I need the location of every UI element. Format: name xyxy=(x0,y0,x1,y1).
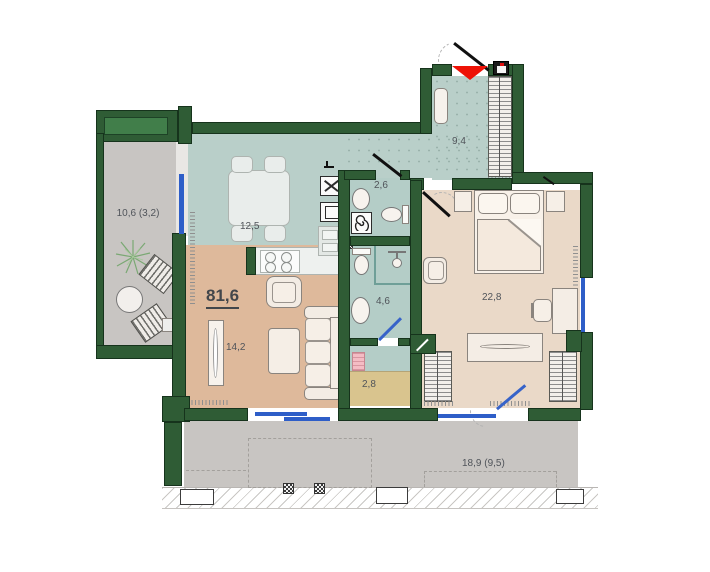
wall xyxy=(350,236,410,246)
wall xyxy=(398,338,410,346)
tv-icon xyxy=(213,328,218,378)
burner-icon xyxy=(265,262,276,273)
pillow xyxy=(510,193,540,214)
radiator-icon xyxy=(190,212,195,304)
pier xyxy=(556,489,584,504)
dining-chair xyxy=(264,225,286,242)
desk-chair xyxy=(533,299,552,322)
wardrobe xyxy=(424,351,452,402)
wall xyxy=(338,408,438,421)
wall xyxy=(246,247,256,275)
radiator-icon xyxy=(424,401,454,406)
wall xyxy=(344,170,376,180)
room-label-bedroom: 22,8 xyxy=(482,292,501,303)
wall xyxy=(338,170,350,410)
entry-bench xyxy=(434,88,448,124)
sink-icon xyxy=(351,297,370,324)
wall xyxy=(184,408,248,421)
terrace-dashed-edge xyxy=(424,471,556,472)
window xyxy=(179,174,184,234)
sofa-cushion xyxy=(305,318,331,341)
terrace-dashed-edge xyxy=(556,471,557,487)
pillow xyxy=(478,193,508,214)
window xyxy=(284,417,330,421)
wall xyxy=(410,180,422,410)
toilet-tank xyxy=(402,205,409,224)
wall xyxy=(350,338,378,346)
window xyxy=(255,412,307,416)
wardrobe-rail xyxy=(437,351,438,402)
armchair-seat xyxy=(272,282,296,303)
room-label-bath-main: 4,6 xyxy=(376,296,390,307)
wall xyxy=(420,68,432,134)
room-label-terrace: 18,9 (9,5) xyxy=(462,458,505,469)
room-label-living: 14,2 xyxy=(226,342,245,353)
window xyxy=(581,278,585,332)
towel-rack xyxy=(352,352,365,371)
terrace-dashed-edge xyxy=(186,470,246,471)
toilet-icon xyxy=(354,255,369,275)
wall xyxy=(580,184,593,278)
entrance-arrow-icon xyxy=(452,66,488,80)
kitchen-sink-bowl xyxy=(322,243,338,252)
floor-plan: 10,6 (3,2) 12,5 9,4 2,6 4,6 14,2 22,8 2,… xyxy=(0,0,710,572)
wall xyxy=(96,133,104,351)
wall xyxy=(178,106,192,144)
kitchen-sink-bowl xyxy=(322,230,338,240)
dining-table xyxy=(228,170,290,226)
nightstand xyxy=(454,191,472,212)
hall-strip-speckle xyxy=(344,134,510,170)
dresser-handle xyxy=(480,344,530,349)
round-table xyxy=(116,286,143,313)
nightstand xyxy=(546,191,565,212)
washing-machine-icon xyxy=(351,212,372,234)
vent-symbol-icon xyxy=(326,161,328,167)
shower-icon xyxy=(388,249,408,269)
wall xyxy=(528,408,581,421)
terrace-dashed-zone xyxy=(248,438,372,488)
room-label-balcony: 10,6 (3,2) xyxy=(106,208,170,219)
wardrobe xyxy=(549,351,577,402)
storage-floor xyxy=(350,372,410,406)
wall xyxy=(452,178,512,190)
dining-chair xyxy=(264,156,286,173)
armchair-seat xyxy=(428,261,444,280)
pier xyxy=(180,489,214,505)
wardrobe-rail xyxy=(499,76,500,177)
wall xyxy=(192,122,432,134)
burner-icon xyxy=(281,262,292,273)
radiator-icon xyxy=(490,401,532,406)
desk-chair-back xyxy=(531,303,534,318)
wall xyxy=(512,64,524,184)
radiator-icon xyxy=(188,400,230,405)
dining-chair xyxy=(231,156,253,173)
toilet-tank xyxy=(352,248,371,255)
shower-partition xyxy=(374,246,376,284)
wall xyxy=(566,330,582,352)
shelf-edge xyxy=(350,371,410,372)
wardrobe xyxy=(488,76,512,177)
wardrobe-rail xyxy=(562,351,563,402)
toilet-icon xyxy=(381,207,402,222)
pier xyxy=(376,487,408,504)
desk xyxy=(552,288,578,334)
wall xyxy=(164,422,182,486)
terrace-floor xyxy=(184,421,578,487)
room-label-bath-guest: 2,6 xyxy=(374,180,388,191)
total-area-label: 81,6 xyxy=(206,286,239,309)
floor-drain-icon xyxy=(283,483,294,494)
wall xyxy=(432,64,452,76)
floor-drain-icon xyxy=(314,483,325,494)
sofa-cushion xyxy=(305,341,331,364)
coffee-table xyxy=(268,328,300,374)
window xyxy=(438,414,496,418)
room-label-hallway: 9,4 xyxy=(452,136,466,147)
terrace-dashed-edge xyxy=(424,471,425,487)
radiator-icon xyxy=(573,246,578,288)
sink-icon xyxy=(352,188,370,210)
room-label-storage: 2,8 xyxy=(362,379,376,390)
room-label-kitchen: 12,5 xyxy=(240,221,259,232)
electrical-panel-icon xyxy=(493,61,509,75)
wall xyxy=(172,233,186,410)
wall-recess xyxy=(104,117,168,135)
sofa-cushion xyxy=(305,364,331,387)
